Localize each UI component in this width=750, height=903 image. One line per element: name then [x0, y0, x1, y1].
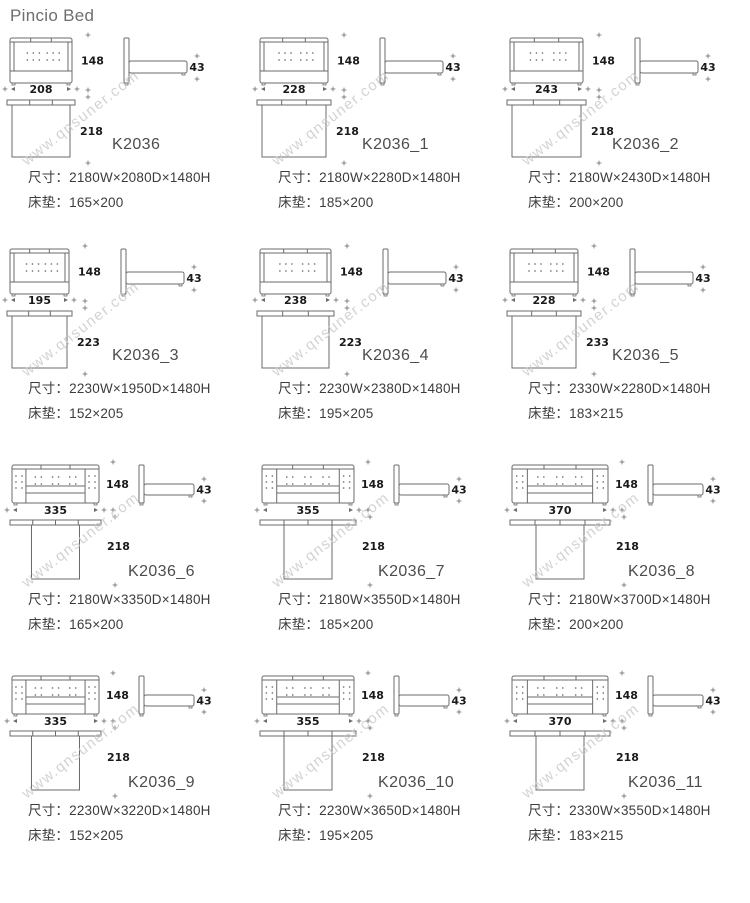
spec-size-value: 2230W×3220D×1480H — [69, 803, 211, 818]
svg-text:43: 43 — [445, 61, 460, 74]
svg-text:218: 218 — [107, 540, 130, 553]
svg-text:218: 218 — [336, 125, 359, 138]
spec-size-line: 尺寸：2330W×3550D×1480H — [528, 799, 711, 819]
svg-text:370: 370 — [549, 504, 572, 517]
spec-mattress-line: 床垫：183×215 — [528, 402, 623, 422]
bed-technical-drawing: 14843243218 — [500, 30, 750, 180]
spec-size-line: 尺寸：2180W×3550D×1480H — [278, 588, 461, 608]
bed-variant-cell: 14843228233 www.qnsuner.com K2036_5 尺寸：2… — [500, 241, 750, 452]
spec-mattress-label: 床垫： — [528, 406, 569, 421]
spec-size-label: 尺寸： — [278, 592, 319, 607]
spec-mattress-label: 床垫： — [28, 828, 69, 843]
bed-variant-cell: 14843355218 www.qnsuner.com K2036_7 尺寸：2… — [250, 452, 500, 663]
svg-text:218: 218 — [362, 751, 385, 764]
model-number: K2036_11 — [628, 774, 703, 792]
spec-size-value: 2180W×2080D×1480H — [69, 170, 211, 185]
bed-technical-drawing: 14843335218 — [0, 663, 250, 813]
svg-text:223: 223 — [339, 336, 362, 349]
spec-size-label: 尺寸： — [278, 803, 319, 818]
svg-text:43: 43 — [451, 484, 466, 497]
svg-text:43: 43 — [196, 484, 211, 497]
spec-mattress-value: 183×215 — [569, 828, 623, 843]
spec-size-value: 2330W×2280D×1480H — [569, 381, 711, 396]
svg-text:218: 218 — [362, 540, 385, 553]
svg-text:218: 218 — [107, 751, 130, 764]
page-title: Pincio Bed — [10, 6, 750, 26]
model-number: K2036_2 — [612, 136, 679, 154]
spec-mattress-line: 床垫：152×205 — [28, 402, 123, 422]
svg-text:148: 148 — [337, 55, 360, 68]
bed-variant-cell: 14843335218 www.qnsuner.com K2036_6 尺寸：2… — [0, 452, 250, 663]
svg-text:43: 43 — [700, 61, 715, 74]
model-number: K2036 — [112, 136, 160, 154]
model-number: K2036_5 — [612, 347, 679, 365]
spec-size-label: 尺寸： — [28, 803, 69, 818]
spec-mattress-label: 床垫： — [28, 406, 69, 421]
model-number: K2036_10 — [378, 774, 454, 792]
spec-size-label: 尺寸： — [28, 170, 69, 185]
bed-variant-cell: 14843195223 www.qnsuner.com K2036_3 尺寸：2… — [0, 241, 250, 452]
spec-size-line: 尺寸：2230W×3650D×1480H — [278, 799, 461, 819]
bed-technical-drawing: 14843228218 — [250, 30, 500, 180]
spec-size-label: 尺寸： — [28, 381, 69, 396]
svg-text:148: 148 — [361, 478, 384, 491]
svg-text:43: 43 — [189, 61, 204, 74]
svg-text:43: 43 — [196, 695, 211, 708]
spec-size-line: 尺寸：2180W×3700D×1480H — [528, 588, 711, 608]
svg-text:195: 195 — [28, 294, 51, 307]
spec-mattress-label: 床垫： — [278, 406, 319, 421]
spec-mattress-value: 152×205 — [69, 406, 123, 421]
spec-mattress-line: 床垫：195×205 — [278, 824, 373, 844]
spec-size-label: 尺寸： — [528, 803, 569, 818]
model-number: K2036_9 — [128, 774, 195, 792]
spec-size-label: 尺寸： — [278, 170, 319, 185]
bed-variant-cell: 14843208218 www.qnsuner.com K2036 尺寸：218… — [0, 30, 250, 241]
bed-technical-drawing: 14843370218 — [500, 663, 750, 813]
spec-mattress-label: 床垫： — [278, 828, 319, 843]
bed-variant-cell: 14843243218 www.qnsuner.com K2036_2 尺寸：2… — [500, 30, 750, 241]
svg-text:148: 148 — [615, 689, 638, 702]
spec-mattress-value: 152×205 — [69, 828, 123, 843]
svg-text:355: 355 — [297, 715, 320, 728]
spec-mattress-label: 床垫： — [528, 828, 569, 843]
bed-technical-drawing: 14843355218 — [250, 452, 500, 602]
model-number: K2036_7 — [378, 563, 445, 581]
spec-mattress-line: 床垫：185×200 — [278, 613, 373, 633]
spec-mattress-line: 床垫：152×205 — [28, 824, 123, 844]
bed-technical-drawing: 14843228233 — [500, 241, 750, 391]
bed-variant-cell: 14843370218 www.qnsuner.com K2036_11 尺寸：… — [500, 663, 750, 874]
spec-size-line: 尺寸：2180W×2080D×1480H — [28, 166, 211, 186]
spec-size-value: 2180W×3550D×1480H — [319, 592, 461, 607]
svg-text:148: 148 — [615, 478, 638, 491]
bed-technical-drawing: 14843335218 — [0, 452, 250, 602]
svg-text:218: 218 — [80, 125, 103, 138]
spec-mattress-label: 床垫： — [278, 617, 319, 632]
spec-size-label: 尺寸： — [528, 170, 569, 185]
svg-text:228: 228 — [533, 294, 556, 307]
spec-mattress-line: 床垫：200×200 — [528, 613, 623, 633]
spec-size-value: 2230W×1950D×1480H — [69, 381, 211, 396]
model-number: K2036_4 — [362, 347, 429, 365]
spec-size-line: 尺寸：2230W×2380D×1480H — [278, 377, 461, 397]
spec-mattress-value: 165×200 — [69, 617, 123, 632]
spec-size-value: 2330W×3550D×1480H — [569, 803, 711, 818]
svg-text:218: 218 — [616, 540, 639, 553]
svg-text:148: 148 — [340, 266, 363, 279]
bed-technical-drawing: 14843238223 — [250, 241, 500, 391]
spec-mattress-value: 185×200 — [319, 617, 373, 632]
spec-mattress-value: 200×200 — [569, 617, 623, 632]
svg-text:148: 148 — [587, 266, 610, 279]
bed-technical-drawing: 14843208218 — [0, 30, 250, 180]
bed-variant-cell: 14843238223 www.qnsuner.com K2036_4 尺寸：2… — [250, 241, 500, 452]
svg-text:43: 43 — [705, 695, 720, 708]
svg-text:148: 148 — [81, 55, 104, 68]
svg-text:370: 370 — [549, 715, 572, 728]
spec-mattress-label: 床垫： — [28, 195, 69, 210]
spec-mattress-value: 185×200 — [319, 195, 373, 210]
svg-text:148: 148 — [592, 55, 615, 68]
spec-size-line: 尺寸：2330W×2280D×1480H — [528, 377, 711, 397]
svg-text:43: 43 — [186, 272, 201, 285]
svg-text:218: 218 — [591, 125, 614, 138]
svg-text:43: 43 — [448, 272, 463, 285]
spec-size-label: 尺寸： — [278, 381, 319, 396]
bed-variant-cell: 14843370218 www.qnsuner.com K2036_8 尺寸：2… — [500, 452, 750, 663]
spec-size-line: 尺寸：2230W×1950D×1480H — [28, 377, 211, 397]
bed-variant-cell: 14843335218 www.qnsuner.com K2036_9 尺寸：2… — [0, 663, 250, 874]
product-grid: 14843208218 www.qnsuner.com K2036 尺寸：218… — [0, 30, 750, 874]
spec-size-line: 尺寸：2180W×3350D×1480H — [28, 588, 211, 608]
bed-variant-cell: 14843228218 www.qnsuner.com K2036_1 尺寸：2… — [250, 30, 500, 241]
spec-size-value: 2180W×3350D×1480H — [69, 592, 211, 607]
svg-text:223: 223 — [77, 336, 100, 349]
spec-mattress-line: 床垫：195×205 — [278, 402, 373, 422]
spec-mattress-line: 床垫：183×215 — [528, 824, 623, 844]
svg-text:148: 148 — [78, 266, 101, 279]
svg-text:355: 355 — [297, 504, 320, 517]
model-number: K2036_8 — [628, 563, 695, 581]
spec-mattress-value: 200×200 — [569, 195, 623, 210]
model-number: K2036_3 — [112, 347, 179, 365]
svg-text:233: 233 — [586, 336, 609, 349]
spec-mattress-value: 183×215 — [569, 406, 623, 421]
svg-text:335: 335 — [44, 715, 67, 728]
spec-size-value: 2180W×3700D×1480H — [569, 592, 711, 607]
svg-text:335: 335 — [44, 504, 67, 517]
spec-size-line: 尺寸：2180W×2430D×1480H — [528, 166, 711, 186]
svg-text:238: 238 — [284, 294, 307, 307]
svg-text:43: 43 — [695, 272, 710, 285]
spec-mattress-value: 165×200 — [69, 195, 123, 210]
spec-mattress-value: 195×205 — [319, 406, 373, 421]
spec-size-value: 2180W×2280D×1480H — [319, 170, 461, 185]
spec-size-value: 2180W×2430D×1480H — [569, 170, 711, 185]
svg-text:218: 218 — [616, 751, 639, 764]
svg-text:43: 43 — [451, 695, 466, 708]
model-number: K2036_1 — [362, 136, 429, 154]
model-number: K2036_6 — [128, 563, 195, 581]
spec-mattress-label: 床垫： — [28, 617, 69, 632]
svg-text:148: 148 — [106, 689, 129, 702]
bed-variant-cell: 14843355218 www.qnsuner.com K2036_10 尺寸：… — [250, 663, 500, 874]
spec-size-label: 尺寸： — [28, 592, 69, 607]
svg-text:208: 208 — [30, 83, 53, 96]
spec-size-value: 2230W×2380D×1480H — [319, 381, 461, 396]
spec-mattress-label: 床垫： — [528, 617, 569, 632]
spec-mattress-label: 床垫： — [528, 195, 569, 210]
bed-technical-drawing: 14843195223 — [0, 241, 250, 391]
spec-mattress-line: 床垫：165×200 — [28, 613, 123, 633]
spec-size-line: 尺寸：2230W×3220D×1480H — [28, 799, 211, 819]
spec-mattress-label: 床垫： — [278, 195, 319, 210]
spec-size-label: 尺寸： — [528, 592, 569, 607]
spec-size-label: 尺寸： — [528, 381, 569, 396]
svg-text:43: 43 — [705, 484, 720, 497]
svg-text:243: 243 — [535, 83, 558, 96]
bed-technical-drawing: 14843355218 — [250, 663, 500, 813]
spec-mattress-line: 床垫：165×200 — [28, 191, 123, 211]
svg-text:228: 228 — [283, 83, 306, 96]
spec-mattress-line: 床垫：185×200 — [278, 191, 373, 211]
spec-mattress-line: 床垫：200×200 — [528, 191, 623, 211]
spec-mattress-value: 195×205 — [319, 828, 373, 843]
svg-text:148: 148 — [361, 689, 384, 702]
bed-technical-drawing: 14843370218 — [500, 452, 750, 602]
svg-text:148: 148 — [106, 478, 129, 491]
spec-size-value: 2230W×3650D×1480H — [319, 803, 461, 818]
spec-size-line: 尺寸：2180W×2280D×1480H — [278, 166, 461, 186]
